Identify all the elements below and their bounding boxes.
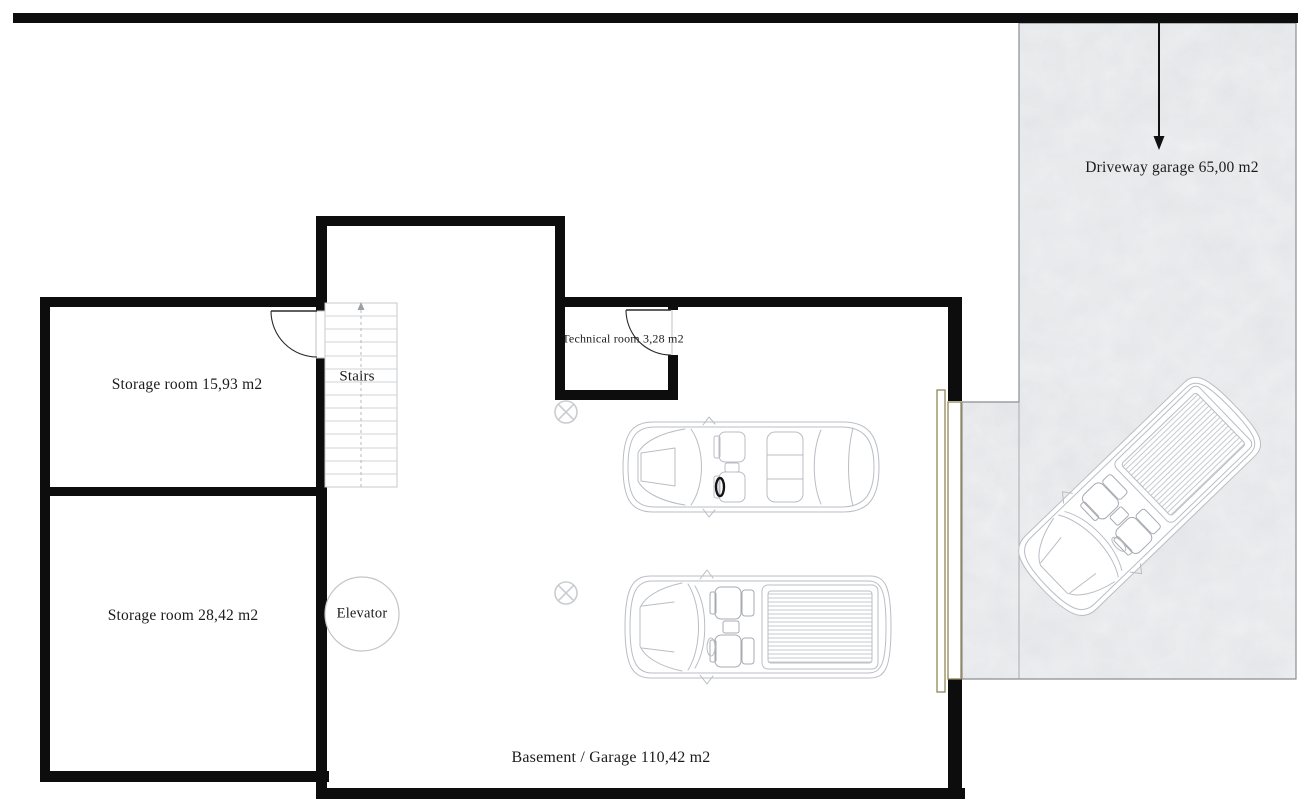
car-pickup-garage (625, 570, 891, 684)
car-sedan-garage (623, 417, 879, 517)
wall-storage-divider (40, 487, 327, 496)
elevator-label: Elevator (337, 606, 388, 623)
wall-left (40, 297, 50, 782)
wall-technical-bottom (558, 390, 678, 400)
floor-plan-page: Storage room 15,93 m2 Storage room 28,42… (0, 0, 1311, 799)
wall-technical-right-lower (668, 355, 678, 400)
garage-door-inner-leaf (948, 402, 961, 679)
basement-garage-label: Basement / Garage 110,42 m2 (512, 749, 711, 767)
ceiling-light-icon (555, 582, 577, 604)
wall-top-site (13, 13, 1298, 23)
driveway-garage-label: Driveway garage 65,00 m2 (1085, 159, 1259, 177)
stairs (325, 302, 397, 487)
wall-storage1-top (40, 297, 327, 307)
storage-room-2-label: Storage room 28,42 m2 (108, 607, 259, 625)
technical-room-label: Technical room 3,28 m2 (562, 332, 684, 347)
wall-garage-bottom (316, 788, 965, 799)
floor-plan-drawing (0, 0, 1311, 799)
wall-stairwell-top (316, 216, 565, 226)
wall-stairwell-right (555, 216, 565, 400)
door-storage1 (271, 311, 327, 358)
ceiling-light-icon (555, 401, 577, 423)
wall-garage-right-lower (948, 679, 962, 799)
wall-main-vertical-upper (316, 216, 327, 311)
garage-door-outer-leaf (937, 390, 945, 692)
garage-door (937, 390, 961, 692)
stairs-label: Stairs (339, 369, 374, 386)
wall-garage-top (555, 297, 962, 307)
storage-room-1-label: Storage room 15,93 m2 (112, 376, 263, 394)
driveway-floor (955, 16, 1303, 686)
wall-garage-right-upper (948, 297, 962, 401)
wall-storage2-bottom (40, 771, 329, 782)
wall-technical-right-upper (668, 297, 678, 310)
